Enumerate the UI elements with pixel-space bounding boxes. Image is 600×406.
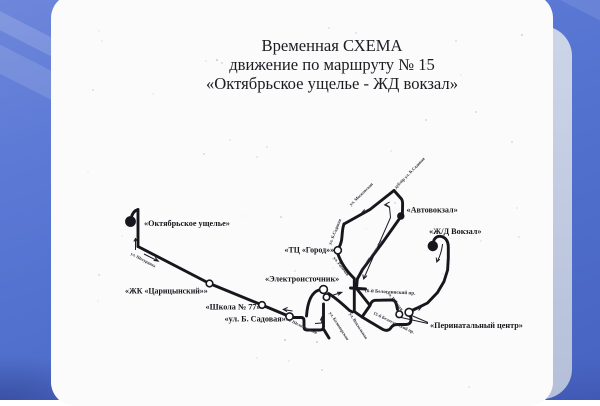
svg-text:дублёр ул. Б.Садовая: дублёр ул. Б.Садовая — [393, 156, 426, 190]
svg-text:«Перинатальный центр»: «Перинатальный центр» — [430, 321, 523, 330]
svg-text:«Октябрьское ущелье - ЖД вокза: «Октябрьское ущелье - ЖД вокзал» — [206, 74, 458, 93]
svg-text:«Школа № 77»: «Школа № 77» — [206, 303, 261, 312]
svg-text:ул.им.Яблочкова Д.В.: ул.им.Яблочкова Д.В. — [360, 239, 385, 273]
svg-text:«ТЦ «Город»»: «ТЦ «Город»» — [285, 246, 335, 255]
svg-text:«Октябрьское ущелье»: «Октябрьское ущелье» — [144, 219, 230, 228]
svg-text:«Ж/Д Вокзал»: «Ж/Д Вокзал» — [429, 227, 481, 236]
svg-text:движение по маршруту № 15: движение по маршруту № 15 — [229, 55, 435, 74]
svg-text:«ул. Б. Садовая»: «ул. Б. Садовая» — [225, 315, 286, 324]
svg-text:ул. Беломорская: ул. Беломорская — [328, 311, 350, 342]
svg-text:«Электроисточник»: «Электроисточник» — [265, 275, 339, 284]
svg-text:Временная СХЕМА: Временная СХЕМА — [262, 36, 403, 55]
svg-text:«Автовокзал»: «Автовокзал» — [407, 206, 458, 215]
svg-text:ул. Московская: ул. Московская — [348, 181, 374, 207]
svg-text:«ЖК «Царицынский»»: «ЖК «Царицынский»» — [125, 287, 208, 296]
